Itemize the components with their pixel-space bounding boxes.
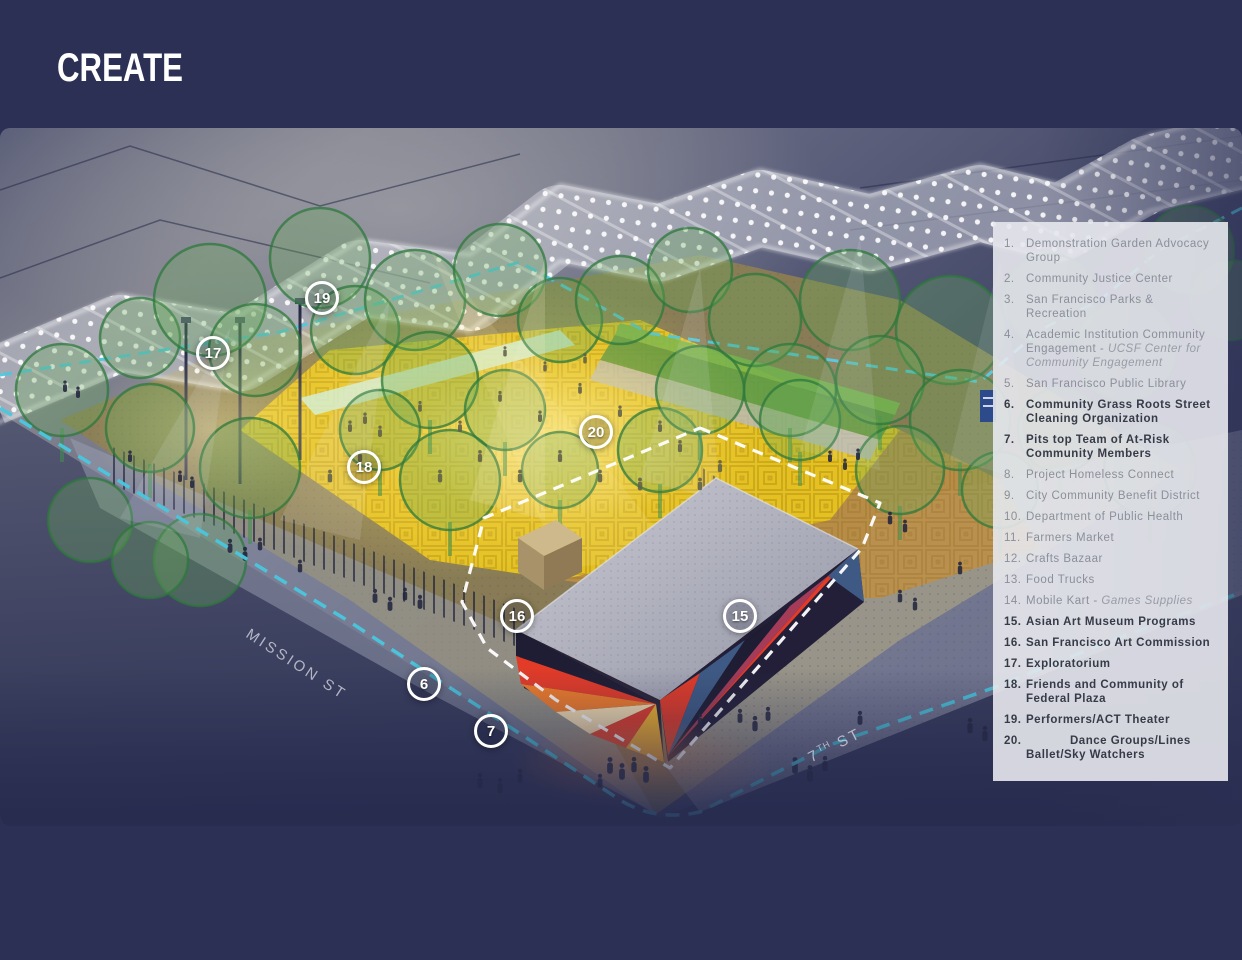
legend-item-number: 6.	[1004, 398, 1026, 426]
legend-item-label: Community Justice Center	[1026, 272, 1216, 286]
map-marker-19: 19	[305, 281, 339, 315]
legend-item: 5.San Francisco Public Library	[1004, 377, 1216, 391]
legend-item: 10.Department of Public Health	[1004, 510, 1216, 524]
legend-item-number: 15.	[1004, 615, 1026, 629]
legend-item: 13.Food Trucks	[1004, 573, 1216, 587]
map-marker-number: 15	[732, 608, 749, 625]
legend-item: 15.Asian Art Museum Programs	[1004, 615, 1216, 629]
map-marker-number: 16	[509, 608, 526, 625]
page-title: CREATE	[57, 46, 183, 91]
map-marker-18: 18	[347, 450, 381, 484]
map-marker-number: 7	[487, 723, 495, 740]
legend-item-number: 2.	[1004, 272, 1026, 286]
legend-item: 14.Mobile Kart - Games Supplies	[1004, 594, 1216, 608]
legend-item-label: Community Grass Roots Street Cleaning Or…	[1026, 398, 1216, 426]
legend-item-label: Academic Institution Community Engagemen…	[1026, 328, 1216, 370]
legend-item-label: Friends and Community of Federal Plaza	[1026, 678, 1216, 706]
legend-item-label: Pits top Team of At-Risk Community Membe…	[1026, 433, 1216, 461]
legend-item-number: 7.	[1004, 433, 1026, 461]
map-marker-number: 19	[314, 290, 331, 307]
presentation-slide: CREATE	[0, 0, 1242, 960]
map-marker-6: 6	[407, 667, 441, 701]
legend-item-label: Dance Groups/Lines Ballet/Sky Watchers	[1026, 734, 1216, 762]
legend-item: 1.Demonstration Garden Advocacy Group	[1004, 237, 1216, 265]
legend-item-number: 3.	[1004, 293, 1026, 321]
legend-item-label: Performers/ACT Theater	[1026, 713, 1216, 727]
legend-item-number: 14.	[1004, 594, 1026, 608]
legend-item: 9.City Community Benefit District	[1004, 489, 1216, 503]
legend-item: 6.Community Grass Roots Street Cleaning …	[1004, 398, 1216, 426]
legend-item-label: Department of Public Health	[1026, 510, 1216, 524]
legend-item-label: San Francisco Parks & Recreation	[1026, 293, 1216, 321]
legend-item-number: 16.	[1004, 636, 1026, 650]
map-marker-number: 20	[588, 424, 605, 441]
legend-item-label: Crafts Bazaar	[1026, 552, 1216, 566]
legend-item-number: 20.	[1004, 734, 1026, 762]
legend-item-number: 19.	[1004, 713, 1026, 727]
legend-item: 18.Friends and Community of Federal Plaz…	[1004, 678, 1216, 706]
legend-item-number: 12.	[1004, 552, 1026, 566]
legend-item: 2.Community Justice Center	[1004, 272, 1216, 286]
legend-item-number: 17.	[1004, 657, 1026, 671]
legend-item-label: Project Homeless Connect	[1026, 468, 1216, 482]
legend-item-label: Exploratorium	[1026, 657, 1216, 671]
map-marker-number: 17	[205, 345, 222, 362]
legend-item: 3.San Francisco Parks & Recreation	[1004, 293, 1216, 321]
legend-item-number: 10.	[1004, 510, 1026, 524]
legend-item: 20.Dance Groups/Lines Ballet/Sky Watcher…	[1004, 734, 1216, 762]
legend-item: 19.Performers/ACT Theater	[1004, 713, 1216, 727]
legend-item: 16.San Francisco Art Commission	[1004, 636, 1216, 650]
legend-item-number: 9.	[1004, 489, 1026, 503]
legend-item-number: 13.	[1004, 573, 1026, 587]
legend-item-label: San Francisco Art Commission	[1026, 636, 1216, 650]
map-marker-7: 7	[474, 714, 508, 748]
legend-item-label: City Community Benefit District	[1026, 489, 1216, 503]
site-plan-rendering: 19172018161567 MISSION ST 7TH ST 1.Demon…	[0, 128, 1242, 826]
map-marker-20: 20	[579, 415, 613, 449]
map-marker-17: 17	[196, 336, 230, 370]
map-marker-16: 16	[500, 599, 534, 633]
legend-item-number: 1.	[1004, 237, 1026, 265]
legend-item-number: 11.	[1004, 531, 1026, 545]
legend-item-number: 5.	[1004, 377, 1026, 391]
legend-panel: 1.Demonstration Garden Advocacy Group2.C…	[993, 222, 1228, 781]
legend-item: 11.Farmers Market	[1004, 531, 1216, 545]
legend-item-label: San Francisco Public Library	[1026, 377, 1216, 391]
legend-item-number: 4.	[1004, 328, 1026, 370]
legend-item-label: Asian Art Museum Programs	[1026, 615, 1216, 629]
legend-item: 17.Exploratorium	[1004, 657, 1216, 671]
legend-item-label: Demonstration Garden Advocacy Group	[1026, 237, 1216, 265]
legend-item: 8.Project Homeless Connect	[1004, 468, 1216, 482]
legend-item-label: Food Trucks	[1026, 573, 1216, 587]
legend-item-number: 18.	[1004, 678, 1026, 706]
legend-item: 7.Pits top Team of At-Risk Community Mem…	[1004, 433, 1216, 461]
legend-list: 1.Demonstration Garden Advocacy Group2.C…	[1004, 237, 1216, 762]
legend-item: 12.Crafts Bazaar	[1004, 552, 1216, 566]
map-marker-15: 15	[723, 599, 757, 633]
map-marker-number: 6	[420, 676, 428, 693]
map-marker-number: 18	[356, 459, 373, 476]
legend-item-label: Mobile Kart - Games Supplies	[1026, 594, 1216, 608]
legend-item: 4.Academic Institution Community Engagem…	[1004, 328, 1216, 370]
legend-item-number: 8.	[1004, 468, 1026, 482]
legend-item-label: Farmers Market	[1026, 531, 1216, 545]
